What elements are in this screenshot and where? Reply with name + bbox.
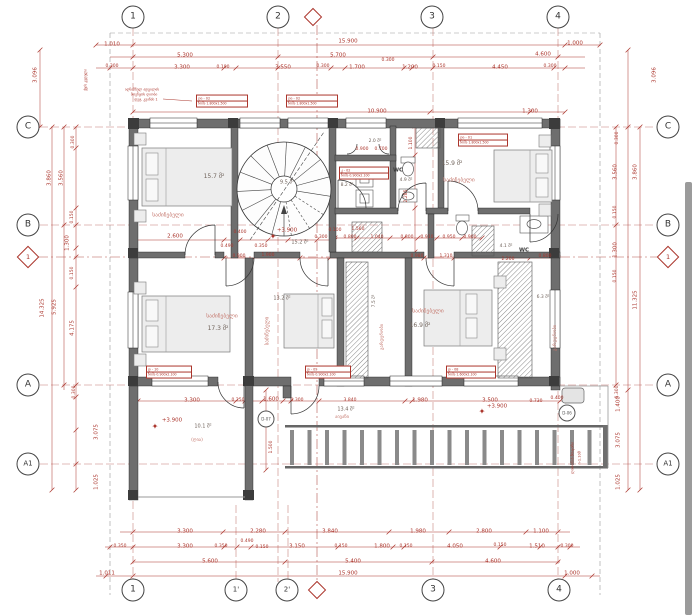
dimension-label: 0.900 [464, 236, 477, 241]
grid-marker-2: 2 [267, 6, 290, 29]
room-area: 7.5 მ² [373, 295, 378, 308]
dimension-label: 3.075 [94, 424, 100, 440]
dimension-label: 4.600 [485, 559, 501, 565]
dimension-label: 0.800 [539, 255, 552, 260]
dimension-label: 0.150 [335, 545, 348, 550]
dimension-label: 0.910 [421, 236, 434, 241]
dimension-label: 14.325 [40, 298, 46, 317]
dimension-label: 1.025 [94, 474, 100, 490]
dimension-label: 2.285 [405, 190, 410, 203]
dimension-label: 1.560 [352, 228, 365, 233]
section-marker [308, 581, 326, 599]
dimension-label: 5.600 [202, 559, 218, 565]
level-star-marker: ✦ [270, 233, 277, 241]
dimension-label: 3.300 [184, 398, 200, 404]
dimension-label: 0.800 [344, 236, 357, 241]
dimension-label: 0.400 [551, 397, 564, 402]
labels-overlay: 1.01015.9001.0005.3005.7004.6000.3000.30… [0, 0, 692, 615]
room-area: 15.9 მ² [442, 161, 463, 167]
dimension-label: 0.100 [329, 229, 342, 234]
dimension-label: 0.300 [73, 386, 78, 399]
dimension-label: 4.175 [70, 320, 76, 336]
dimension-label: აღნიშნულ ადგილას [125, 88, 159, 92]
dimension-label: 0.300 [317, 65, 330, 70]
dimension-label: 5.700 [330, 53, 346, 59]
dimension-label: დეტ. კვანძი 1 [134, 98, 157, 102]
dimension-label: 10.900 [367, 109, 386, 115]
dimension-label: 0.400 [234, 231, 247, 236]
dimension-label: 1.000 [567, 41, 583, 47]
dimension-label: 3.840 [322, 529, 338, 535]
dimension-label: 0.730 [530, 400, 543, 405]
dimension-label: 1.300 [613, 242, 619, 258]
dimension-label: 1.700 [349, 65, 365, 71]
room-area: 15.7 მ² [204, 174, 225, 180]
grid-marker-1: 1 [122, 6, 145, 29]
section-marker: 1 [657, 246, 680, 269]
tag-size: ზომა 1.800x1.500 [459, 141, 507, 146]
dimension-label: 0.300 [544, 65, 557, 70]
dimension-label: 3.150 [289, 544, 305, 550]
dimension-label: 11.325 [633, 290, 639, 309]
grid-marker-c: C [17, 116, 40, 139]
dimension-label: 3.840 [344, 399, 357, 404]
element-tag: კ - 02ზომა 0.900x2.100 [339, 167, 389, 180]
dimension-label: 0.150 [71, 267, 76, 280]
grid-marker-a: A [17, 374, 40, 397]
grid-marker-1': 1' [225, 579, 248, 602]
element-tag: ღი - 01ზომა 1.800x1.500 [458, 134, 508, 147]
tag-size: ზომა 0.900x2.100 [306, 373, 350, 378]
dimension-label: 3.300 [174, 65, 190, 71]
room-area: 13.2 მ² [273, 297, 290, 302]
dimension-label: 0.300 [616, 132, 621, 145]
grid-marker-3: 3 [421, 6, 444, 29]
fixture-label: WC [393, 168, 403, 174]
dimension-label: 1.010 [104, 42, 120, 48]
dimension-label: 15.900 [338, 39, 357, 45]
grid-marker-2': 2' [276, 579, 299, 602]
grid-marker-3: 3 [422, 579, 445, 602]
element-tag: ღი - 02ზომა 1.800x1.500 [196, 95, 248, 108]
element-tag: ღი - 02ზომა 1.800x1.500 [286, 95, 338, 108]
grid-marker-b: B [657, 214, 680, 237]
dimension-label: 0.950 [443, 236, 456, 241]
dimension-label: ლითონის მოაჯირი [571, 442, 575, 474]
grid-marker-4: 4 [548, 579, 571, 602]
dimension-label: 0.300 [291, 399, 304, 404]
dimension-label: 0.190 [217, 66, 230, 71]
grid-marker-4: 4 [547, 6, 570, 29]
dimension-label: 0.150 [614, 206, 619, 219]
dimension-label: 3.860 [47, 170, 53, 186]
dimension-label: 0.300 [561, 545, 574, 550]
room-area: 16.9 მ² [410, 323, 431, 329]
fixture-label: WC [519, 248, 529, 254]
floor-plan-canvas: 1.01015.9001.0005.3005.7004.6000.3000.30… [0, 0, 692, 615]
dimension-label: 2.600 [167, 234, 183, 240]
room-area: 8.2 მ² [341, 184, 354, 189]
dimension-label: 0.490 [221, 245, 234, 250]
section-marker: 1 [17, 246, 40, 269]
dimension-label: 0.150 [400, 545, 413, 550]
grid-marker-a1: A1 [657, 453, 680, 476]
dimension-label: 0.300 [106, 65, 119, 70]
dimension-label: 5.925 [52, 299, 58, 315]
dimension-label: 3.075 [616, 432, 622, 448]
dimension-label: 1.100 [410, 137, 415, 150]
dimension-label: 3.860 [633, 164, 639, 180]
dimension-label: 0.980 [411, 255, 424, 260]
dimension-label: 5.300 [177, 53, 193, 59]
dimension-label: 1.800 [374, 544, 390, 550]
dimension-label: 2.200 [502, 258, 515, 263]
dimension-label: მოეწყოს ღიობი [131, 93, 158, 97]
dimension-label: 1.025 [616, 474, 622, 490]
dimension-label: 3.300 [177, 544, 193, 550]
dimension-label: 1.600 [263, 397, 279, 403]
dimension-label: 0.300 [382, 59, 395, 64]
room-area: 2.0 მ² [369, 140, 382, 145]
grid-marker-b: B [17, 214, 40, 237]
room-name: აივანი [335, 416, 349, 421]
dimension-label: 3.300 [177, 529, 193, 535]
dimension-label: 3.560 [59, 170, 65, 186]
dimension-label: 1.200 [402, 65, 418, 71]
grid-marker-c: C [657, 116, 680, 139]
room-area: 10.1 მ² [194, 425, 211, 430]
level-star-marker: ✦ [479, 408, 486, 416]
dimension-label: 1.000 [564, 571, 580, 577]
scrollbar-thumb[interactable] [685, 182, 692, 615]
dimension-label: 0.150 [614, 270, 619, 283]
dimension-label: 4.050 [447, 544, 463, 550]
dimension-label: 1.980 [412, 398, 428, 404]
dimension-label: 1.510 [529, 544, 545, 550]
dimension-label: 3.550 [275, 65, 291, 71]
dimension-label: 1.980 [410, 529, 426, 535]
element-tag: დ - 10ზომა 0.900x2.100 [146, 366, 192, 379]
room-name: საძინებელი [443, 178, 474, 184]
dimension-label: 1.400 [616, 396, 622, 412]
room-name: საძინებელი [412, 309, 443, 315]
room-name: საძინებელი [206, 314, 237, 320]
dimension-label: 0.800 [401, 236, 414, 241]
dimension-label: 1.300 [522, 109, 538, 115]
dimension-label: 0.300 [315, 236, 328, 241]
dimension-label: 1.310 [440, 255, 453, 260]
dimension-label: ქვის კედელი [84, 69, 88, 91]
dimension-label: 0.150 [494, 544, 507, 549]
dimension-label: 0.250 [232, 399, 245, 404]
detail-marker: D-07 [258, 411, 275, 428]
dimension-label: 3.096 [652, 67, 658, 83]
element-tag: დ - 08ზომა 1.600x2.100 [446, 366, 496, 379]
dimension-label: 0.300 [72, 136, 77, 149]
dimension-label: 3.500 [482, 398, 498, 404]
tag-size: ზომა 1.800x1.500 [197, 102, 247, 107]
grid-marker-a1: A1 [17, 453, 40, 476]
room-area: 13.4 მ² [337, 408, 354, 413]
element-tag: დ - 09ზომა 0.900x2.100 [305, 366, 351, 379]
dimension-label: 0.490 [241, 540, 254, 545]
dimension-label: 0.300 [616, 386, 621, 399]
dimension-label: 15.900 [338, 571, 357, 577]
room-area: 4.9 მ² [400, 179, 413, 184]
grid-marker-a: A [657, 374, 680, 397]
room-area: 15.2 მ² [291, 241, 308, 246]
section-marker-label: 1 [666, 253, 670, 261]
dimension-label: 1.011 [99, 571, 115, 577]
dimension-label: 0.900 [356, 148, 369, 153]
dimension-label: 1.900 [262, 254, 275, 259]
dimension-label: 5.400 [345, 559, 361, 565]
dimension-label: 3.096 [33, 67, 39, 83]
room-area: 9.5 მ² [280, 181, 294, 186]
detail-marker: D-06 [559, 405, 576, 422]
dimension-label: +3.900 [487, 404, 507, 410]
dimension-label: +3.900 [162, 418, 182, 424]
room-area: 17.3 მ² [208, 326, 229, 332]
dimension-label: 0.700 [375, 148, 388, 153]
dimension-label: 0.350 [114, 545, 127, 550]
tag-size: ზომა 0.900x2.100 [147, 373, 191, 378]
section-marker-label: 1 [26, 253, 30, 261]
room-name: გარდერობი [554, 325, 559, 351]
dimension-label: 2.800 [476, 529, 492, 535]
dimension-label: 1.300 [65, 235, 71, 251]
dimension-label: h-1.10მ [578, 451, 582, 464]
dimension-label: 0.150 [256, 546, 269, 551]
dimension-label: 0.150 [433, 65, 446, 70]
room-area: 4.1 მ² [500, 245, 513, 250]
room-name: (ღია) [191, 439, 203, 444]
dimension-label: +3.900 [277, 228, 297, 234]
dimension-label: 2.280 [250, 529, 266, 535]
room-name: საძინებელი [266, 317, 271, 346]
level-star-marker: ✦ [152, 423, 159, 431]
dimension-label: 3.560 [613, 164, 619, 180]
grid-marker-1: 1 [122, 579, 145, 602]
dimension-label: 0.350 [215, 545, 228, 550]
dimension-label: 0.900 [233, 255, 246, 260]
dimension-label: 4.600 [535, 52, 551, 58]
dimension-label: 0.350 [255, 245, 268, 250]
room-name: საძინებელი [152, 213, 183, 219]
tag-size: ზომა 1.600x2.100 [447, 373, 495, 378]
dimension-label: 0.150 [71, 211, 76, 224]
tag-size: ზომა 1.800x1.500 [287, 102, 337, 107]
tag-size: ზომა 0.900x2.100 [340, 174, 388, 179]
dimension-label: 1.500 [270, 441, 275, 454]
dimension-label: 4.450 [492, 65, 508, 71]
dimension-label: 1.040 [371, 236, 384, 241]
section-marker [304, 8, 322, 26]
room-name: გარდერობი [381, 324, 386, 350]
room-area: 6.3 მ² [537, 296, 550, 301]
dimension-label: 1.100 [533, 529, 549, 535]
